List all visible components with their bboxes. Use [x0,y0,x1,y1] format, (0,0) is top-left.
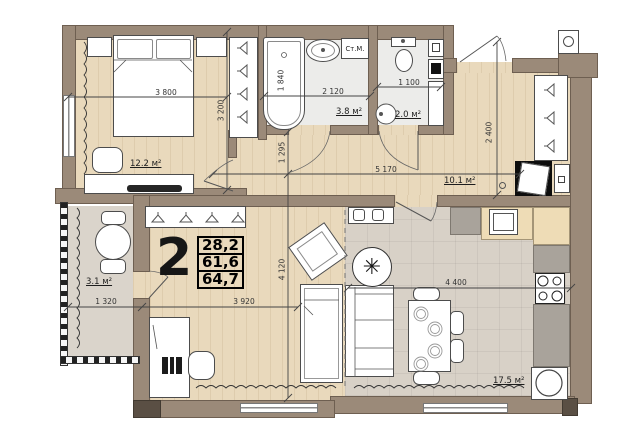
dim-3200: 3 200 [217,89,226,133]
wc-area-label: 2.0 м² [395,110,421,120]
hallway-area-label: 10.1 м² [444,176,475,186]
dim-4400: 4 400 [434,278,478,287]
dim-2120: 2 120 [311,87,355,96]
dim-1840: 1 840 [277,59,286,103]
bath-drain [282,53,287,58]
dim-3800: 3 800 [144,88,188,97]
dim-1320: 1 320 [84,297,128,306]
dim-1100: 1 100 [387,78,431,87]
curtain-bedroom [84,42,87,174]
dimension-ticks [64,28,575,402]
toilet-button [401,39,405,43]
dim-1295: 1 295 [278,131,287,175]
apartment-rooms-number: 2 [156,232,192,284]
stove-burners [538,276,562,301]
dim-4120: 4 120 [278,248,287,292]
dim-2400: 2 400 [485,111,494,155]
wardrobe-hangers [152,42,554,222]
washer-drum [536,370,562,396]
balcony-area-label: 3.1 м² [86,277,112,287]
floor-plan: Ст.М. ✳ [0,0,632,446]
dim-5170: 5 170 [364,165,408,174]
curtain-living [196,386,336,389]
wc-sink-tap [379,112,383,116]
dim-3920: 3 920 [222,297,266,306]
bathroom-area-label: 3.8 м² [336,107,362,117]
kitchen-area-label: 17.5 м² [493,376,524,386]
curtain-balcony [77,208,80,348]
bedroom-area-label: 12.2 м² [130,159,161,169]
plates [414,307,442,371]
sink-drain [321,48,325,52]
plan-linework [0,0,632,446]
apartment-total-area: 64,7 [197,270,244,289]
